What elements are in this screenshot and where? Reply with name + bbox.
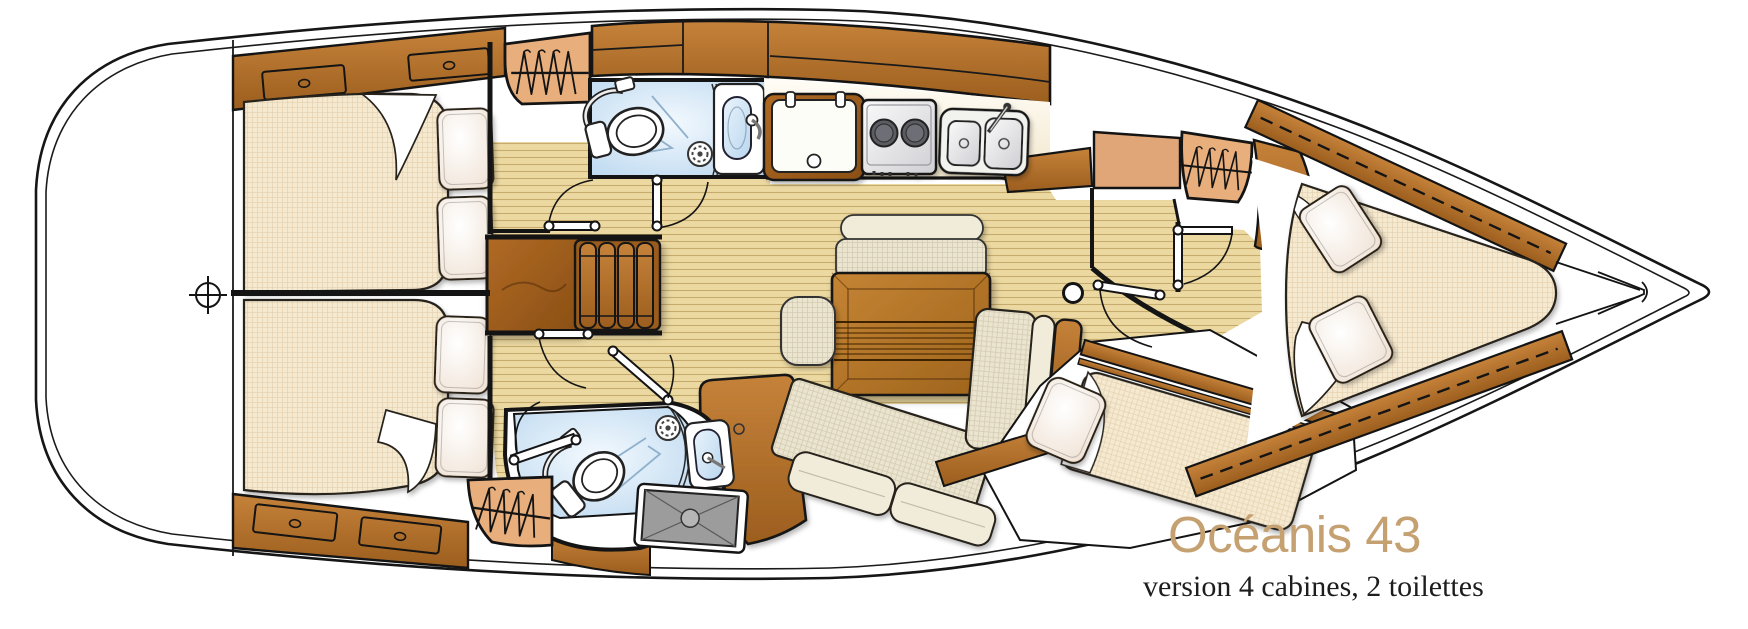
boat-version-subtitle: version 4 cabines, 2 toilettes [1143, 570, 1484, 603]
double-berth [244, 94, 448, 292]
double-sink-icon [939, 100, 1029, 175]
oceanis-43-floorplan-page: Océanis 43 version 4 cabines, 2 toilette… [0, 0, 1748, 629]
saloon-bench [836, 215, 986, 279]
stove-icon [862, 100, 936, 177]
saloon-stool [781, 297, 835, 365]
aft-cabin-starboard [233, 300, 494, 568]
pillow-icon [437, 108, 494, 190]
shower-tray-icon [634, 484, 748, 554]
fridge-icon [764, 92, 864, 180]
aft-cabin-port [233, 28, 505, 292]
pillow-icon [435, 398, 494, 478]
double-berth [244, 300, 448, 494]
nav-seat-block [1094, 132, 1180, 188]
pillow-icon [434, 316, 491, 394]
shower-drain-icon [656, 416, 680, 440]
head-forward [576, 72, 767, 177]
shower-drain-icon [688, 142, 712, 166]
floorplan-canvas: Océanis 43 version 4 cabines, 2 toilette… [0, 0, 1748, 629]
saloon-table [832, 273, 990, 395]
companionway [487, 237, 660, 333]
washbasin-icon [684, 419, 735, 489]
mast-post-icon [1064, 284, 1083, 303]
hanging-locker-aft-port [505, 33, 590, 104]
boat-model-title: Océanis 43 [1168, 506, 1421, 563]
hanging-locker-forward [1181, 132, 1254, 202]
